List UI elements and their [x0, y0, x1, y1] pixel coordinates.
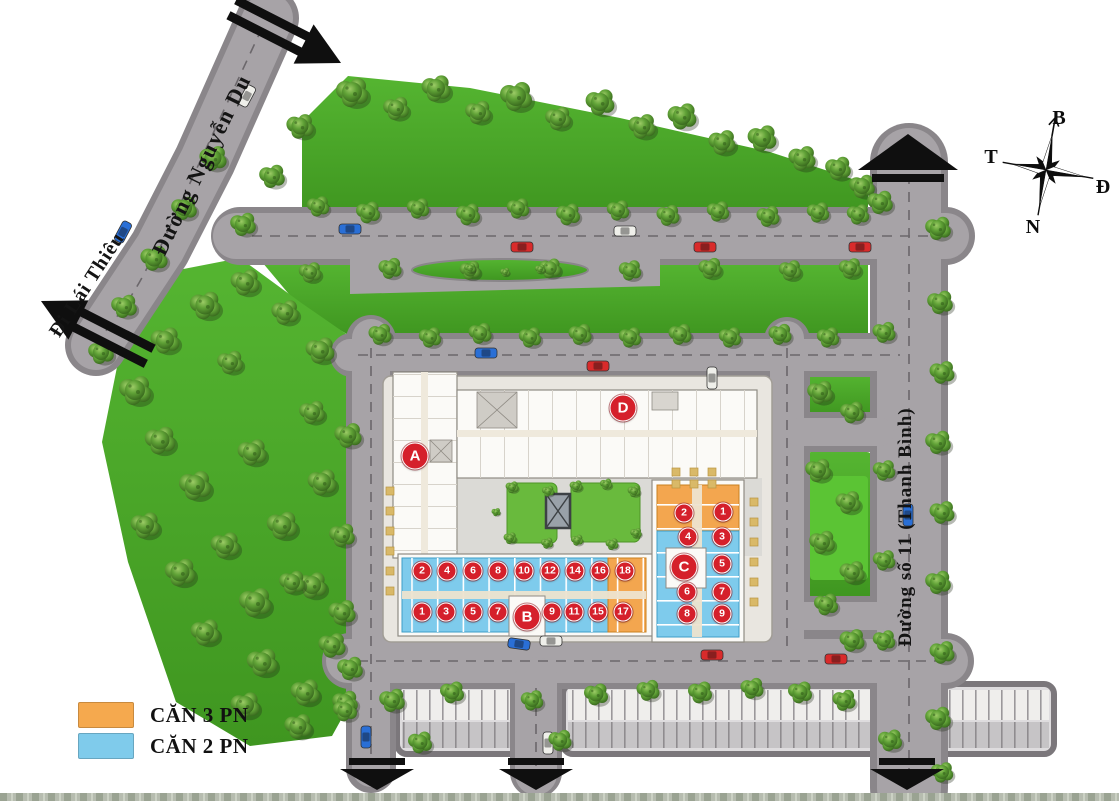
compass-west-label: T [984, 146, 998, 168]
road-label-street-11: Đường số 11 (Thanh Bình) [895, 407, 916, 646]
legend-label-3pn: CĂN 3 PN [150, 703, 249, 728]
car [701, 650, 723, 660]
block-a-tower [393, 372, 457, 558]
legend-swatch-2pn [78, 733, 134, 759]
compass-east-label: Đ [1096, 176, 1110, 198]
block-b-row [398, 554, 662, 636]
car [540, 636, 562, 646]
legend-swatch-3pn [78, 702, 134, 728]
compass: B Đ N T [984, 107, 1110, 238]
lobby-b [509, 596, 545, 636]
arrow-down-mid-exit [499, 758, 573, 790]
car [361, 726, 371, 748]
legend-row-2pn: CĂN 2 PN [78, 733, 249, 759]
block-c-wing [652, 480, 744, 642]
block-d-tower [457, 390, 757, 478]
building-complex [383, 372, 772, 642]
legend-label-2pn: CĂN 2 PN [150, 734, 249, 759]
lobby-c [666, 548, 706, 588]
compass-north-label: B [1052, 107, 1065, 129]
legend: CĂN 3 PN CĂN 2 PN [78, 702, 249, 764]
car [849, 242, 871, 252]
site-plan-svg: Đường Nguyễn Du Đi Lái Thiêu Đường số 11… [0, 0, 1119, 801]
car [825, 654, 847, 664]
car [587, 361, 609, 371]
bottom-hedge-strip [0, 793, 1119, 801]
car [614, 226, 636, 236]
courtyard-gardens [507, 483, 640, 543]
car [339, 224, 361, 234]
car [475, 348, 497, 358]
site-plan: Đường Nguyễn Du Đi Lái Thiêu Đường số 11… [0, 0, 1119, 801]
compass-south-label: N [1026, 216, 1041, 238]
legend-row-3pn: CĂN 3 PN [78, 702, 249, 728]
parking-structures [397, 684, 1054, 754]
car [707, 367, 717, 389]
compass-star [995, 110, 1103, 223]
skylight [546, 494, 570, 528]
arrow-down-left-exit [340, 758, 414, 790]
car [694, 242, 716, 252]
car [511, 242, 533, 252]
